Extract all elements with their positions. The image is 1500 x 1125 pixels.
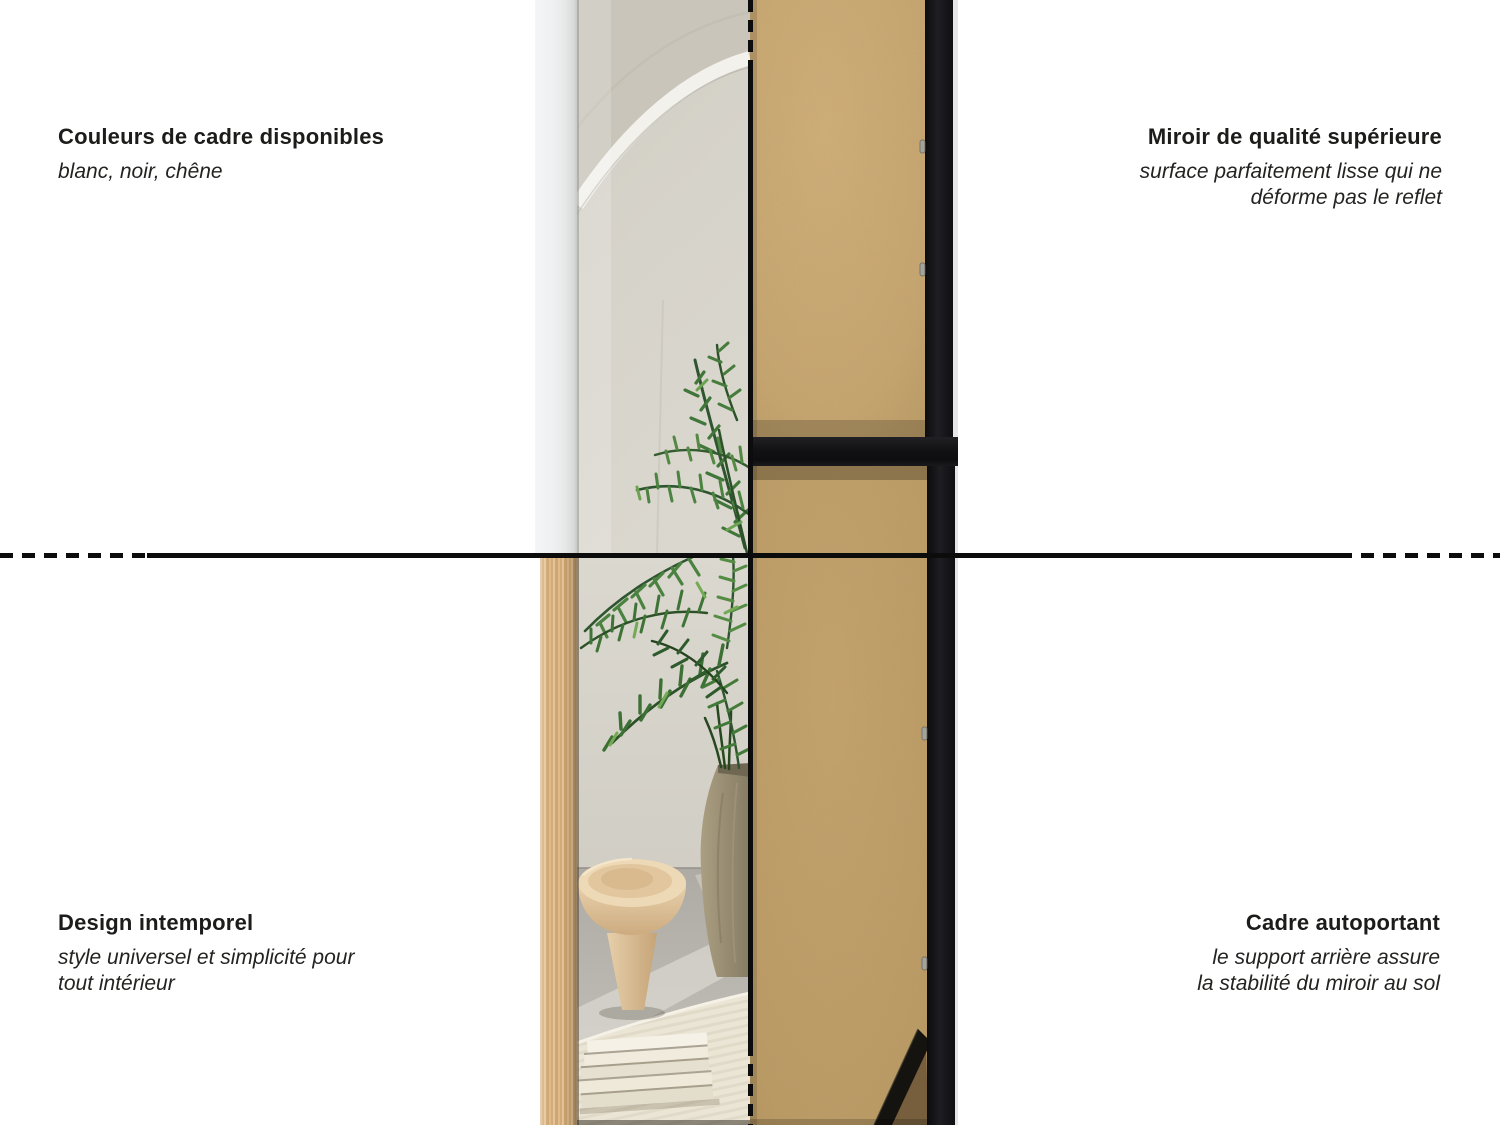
frame-drop-shadow [955,466,958,1125]
black-frame-strip [925,0,953,437]
feature-frame-colors: Couleurs de cadre disponibles blanc, noi… [58,124,384,185]
feature-mirror-quality: Miroir de qualité supérieure surface par… [1140,124,1442,211]
mirror-edge-seam [577,0,579,553]
divider-horizontal-left-dashes [0,553,147,558]
feature-timeless-design: Design intemporel style universel et sim… [58,910,354,997]
panel-bottom-shadow [750,420,928,437]
light-sheen [577,0,611,553]
mirror-back-panel [750,0,958,437]
mirror-edge-seam [577,553,579,1125]
panel-top-shadow [750,466,930,480]
feature-description: le support arrière assure la stabilité d… [1197,945,1440,997]
divider-vertical-bottom-dashes [748,1056,753,1125]
feature-title: Couleurs de cadre disponibles [58,124,384,150]
feature-description: blanc, noir, chêne [58,159,384,185]
infographic-canvas: Couleurs de cadre disponibles blanc, noi… [0,0,1500,1125]
kraft-grain [750,466,930,1125]
stacked-mats [577,1032,720,1115]
mirror-back-support-panel [750,466,958,1125]
feature-title: Miroir de qualité supérieure [1140,124,1442,150]
mirror-reflection-room-scene [577,553,750,1125]
divider-horizontal-right-dashes [1352,553,1500,558]
feature-description: surface parfaitement lisse qui ne déform… [1140,159,1442,211]
divider-vertical [748,70,753,1056]
support-frame-top-bar [750,437,958,466]
frame-drop-shadow [953,0,958,437]
feature-title: Cadre autoportant [1197,910,1440,936]
black-frame-strip [927,466,955,1125]
divider-vertical-top-dashes [748,0,753,70]
panel-bottom-shadow [750,1119,930,1125]
photo-bottom-shadow [577,1120,750,1125]
mirror-frame-white-strip [535,0,578,553]
feature-title: Design intemporel [58,910,354,936]
mirror-frame-oak-strip [540,553,579,1125]
kraft-grain [750,0,928,437]
mirror-reflection-arch-scene [577,0,750,553]
feature-freestanding-frame: Cadre autoportant le support arrière ass… [1197,910,1440,997]
feature-description: style universel et simplicité pour tout … [58,945,354,997]
